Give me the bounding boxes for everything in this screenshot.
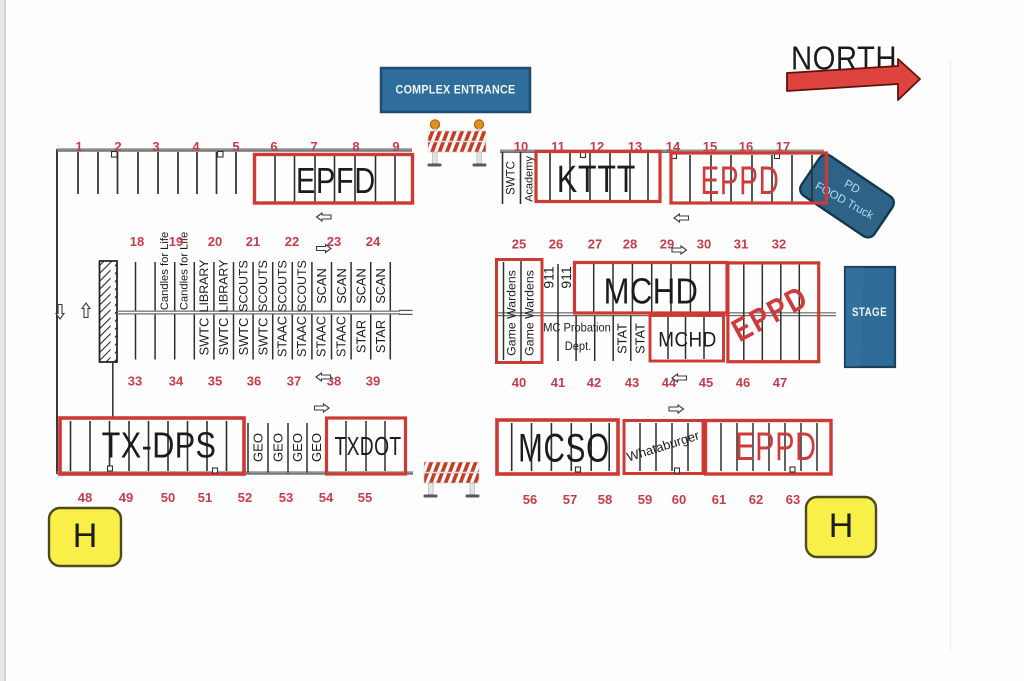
svg-text:13: 13 <box>628 139 642 154</box>
svg-text:SCAN: SCAN <box>314 268 329 304</box>
svg-text:28: 28 <box>623 237 637 252</box>
svg-text:MC Probation: MC Probation <box>543 321 611 335</box>
svg-text:STAAC: STAAC <box>334 316 348 357</box>
svg-text:43: 43 <box>625 375 639 390</box>
svg-text:GEO: GEO <box>309 433 324 462</box>
svg-text:36: 36 <box>247 374 261 389</box>
svg-text:KTTT: KTTT <box>557 159 636 201</box>
svg-text:33: 33 <box>128 374 142 389</box>
svg-text:GEO: GEO <box>290 433 305 462</box>
svg-text:10: 10 <box>514 139 528 154</box>
svg-text:12: 12 <box>590 139 604 154</box>
svg-text:63: 63 <box>786 492 800 507</box>
svg-text:11: 11 <box>551 139 565 154</box>
svg-text:Academy: Academy <box>524 156 536 202</box>
svg-text:21: 21 <box>246 234 260 249</box>
svg-text:GEO: GEO <box>271 433 286 462</box>
svg-text:62: 62 <box>749 492 763 507</box>
svg-text:SCAN: SCAN <box>353 268 368 304</box>
svg-text:MCHD: MCHD <box>604 271 699 312</box>
svg-text:41: 41 <box>551 375 565 390</box>
svg-text:H: H <box>829 507 854 545</box>
svg-text:27: 27 <box>588 237 602 252</box>
svg-text:GEO: GEO <box>251 433 266 462</box>
svg-text:18: 18 <box>130 234 144 249</box>
svg-text:49: 49 <box>119 490 133 505</box>
svg-text:9: 9 <box>392 139 399 154</box>
svg-text:7: 7 <box>310 139 317 154</box>
svg-text:45: 45 <box>699 375 713 390</box>
svg-text:SCOUTS: SCOUTS <box>256 260 270 312</box>
svg-text:40: 40 <box>512 375 526 390</box>
svg-text:57: 57 <box>563 492 577 507</box>
svg-text:SCOUTS: SCOUTS <box>276 260 290 312</box>
svg-text:17: 17 <box>776 139 790 154</box>
svg-text:STAT: STAT <box>615 323 630 354</box>
svg-text:TX-DPS: TX-DPS <box>102 426 217 466</box>
svg-text:32: 32 <box>772 237 786 252</box>
svg-text:8: 8 <box>352 139 359 154</box>
svg-text:54: 54 <box>319 490 334 505</box>
svg-text:STAAC: STAAC <box>295 316 309 357</box>
svg-text:STAR: STAR <box>353 320 368 353</box>
svg-text:SCAN: SCAN <box>334 268 349 304</box>
svg-text:35: 35 <box>208 374 222 389</box>
svg-text:2: 2 <box>114 139 121 154</box>
svg-text:SWTC: SWTC <box>506 161 518 195</box>
svg-text:16: 16 <box>739 139 753 154</box>
svg-text:48: 48 <box>78 490 92 505</box>
svg-text:911: 911 <box>558 266 574 289</box>
svg-text:5: 5 <box>232 139 239 154</box>
svg-text:TXDOT: TXDOT <box>334 431 401 461</box>
svg-text:52: 52 <box>238 490 252 505</box>
svg-text:MCSO: MCSO <box>518 426 610 470</box>
svg-text:SWTC: SWTC <box>216 318 231 356</box>
svg-text:STAAC: STAAC <box>276 316 290 357</box>
svg-text:SWTC: SWTC <box>255 318 270 356</box>
svg-text:SCOUTS: SCOUTS <box>295 260 309 312</box>
svg-text:22: 22 <box>285 234 299 249</box>
svg-text:47: 47 <box>773 375 787 390</box>
svg-text:SWTC: SWTC <box>197 318 212 356</box>
svg-text:58: 58 <box>598 492 612 507</box>
svg-text:STAR: STAR <box>373 320 388 353</box>
svg-text:6: 6 <box>270 139 277 154</box>
svg-text:COMPLEX ENTRANCE: COMPLEX ENTRANCE <box>396 84 516 97</box>
svg-text:911: 911 <box>541 266 557 289</box>
svg-text:SWTC: SWTC <box>236 318 251 356</box>
svg-text:20: 20 <box>208 234 222 249</box>
svg-text:MCHD: MCHD <box>658 328 716 351</box>
svg-text:60: 60 <box>672 492 686 507</box>
svg-text:30: 30 <box>697 237 711 252</box>
svg-text:STAAC: STAAC <box>315 316 329 357</box>
svg-text:31: 31 <box>734 237 748 252</box>
svg-text:Game Wardens: Game Wardens <box>522 270 536 356</box>
svg-text:STAGE: STAGE <box>852 307 887 320</box>
svg-text:LIBRARY: LIBRARY <box>217 260 231 313</box>
svg-text:14: 14 <box>666 139 681 154</box>
svg-text:EPFD: EPFD <box>296 160 376 201</box>
svg-text:39: 39 <box>366 374 380 389</box>
svg-text:19: 19 <box>169 234 183 249</box>
svg-text:Game Wardens: Game Wardens <box>505 270 519 356</box>
svg-text:26: 26 <box>549 237 563 252</box>
svg-text:1: 1 <box>75 139 82 154</box>
svg-text:34: 34 <box>169 374 184 389</box>
svg-text:H: H <box>73 517 98 555</box>
svg-text:56: 56 <box>523 492 537 507</box>
svg-text:46: 46 <box>736 375 750 390</box>
svg-text:24: 24 <box>366 234 381 249</box>
svg-text:STAT: STAT <box>633 323 648 354</box>
svg-text:15: 15 <box>703 139 717 154</box>
svg-text:53: 53 <box>279 490 293 505</box>
svg-text:EPPD: EPPD <box>735 425 816 470</box>
svg-text:42: 42 <box>587 375 601 390</box>
svg-text:59: 59 <box>638 492 652 507</box>
svg-text:55: 55 <box>358 490 372 505</box>
svg-text:51: 51 <box>198 490 212 505</box>
svg-text:SCOUTS: SCOUTS <box>236 260 250 312</box>
svg-text:25: 25 <box>512 237 526 252</box>
svg-text:61: 61 <box>712 492 726 507</box>
svg-text:Dept.: Dept. <box>565 340 591 354</box>
svg-text:3: 3 <box>152 139 159 154</box>
svg-text:37: 37 <box>287 374 301 389</box>
svg-text:LIBRARY: LIBRARY <box>197 260 211 313</box>
svg-text:4: 4 <box>192 139 200 154</box>
svg-text:50: 50 <box>161 490 175 505</box>
svg-text:EPPD: EPPD <box>700 159 779 203</box>
svg-text:SCAN: SCAN <box>373 268 388 304</box>
